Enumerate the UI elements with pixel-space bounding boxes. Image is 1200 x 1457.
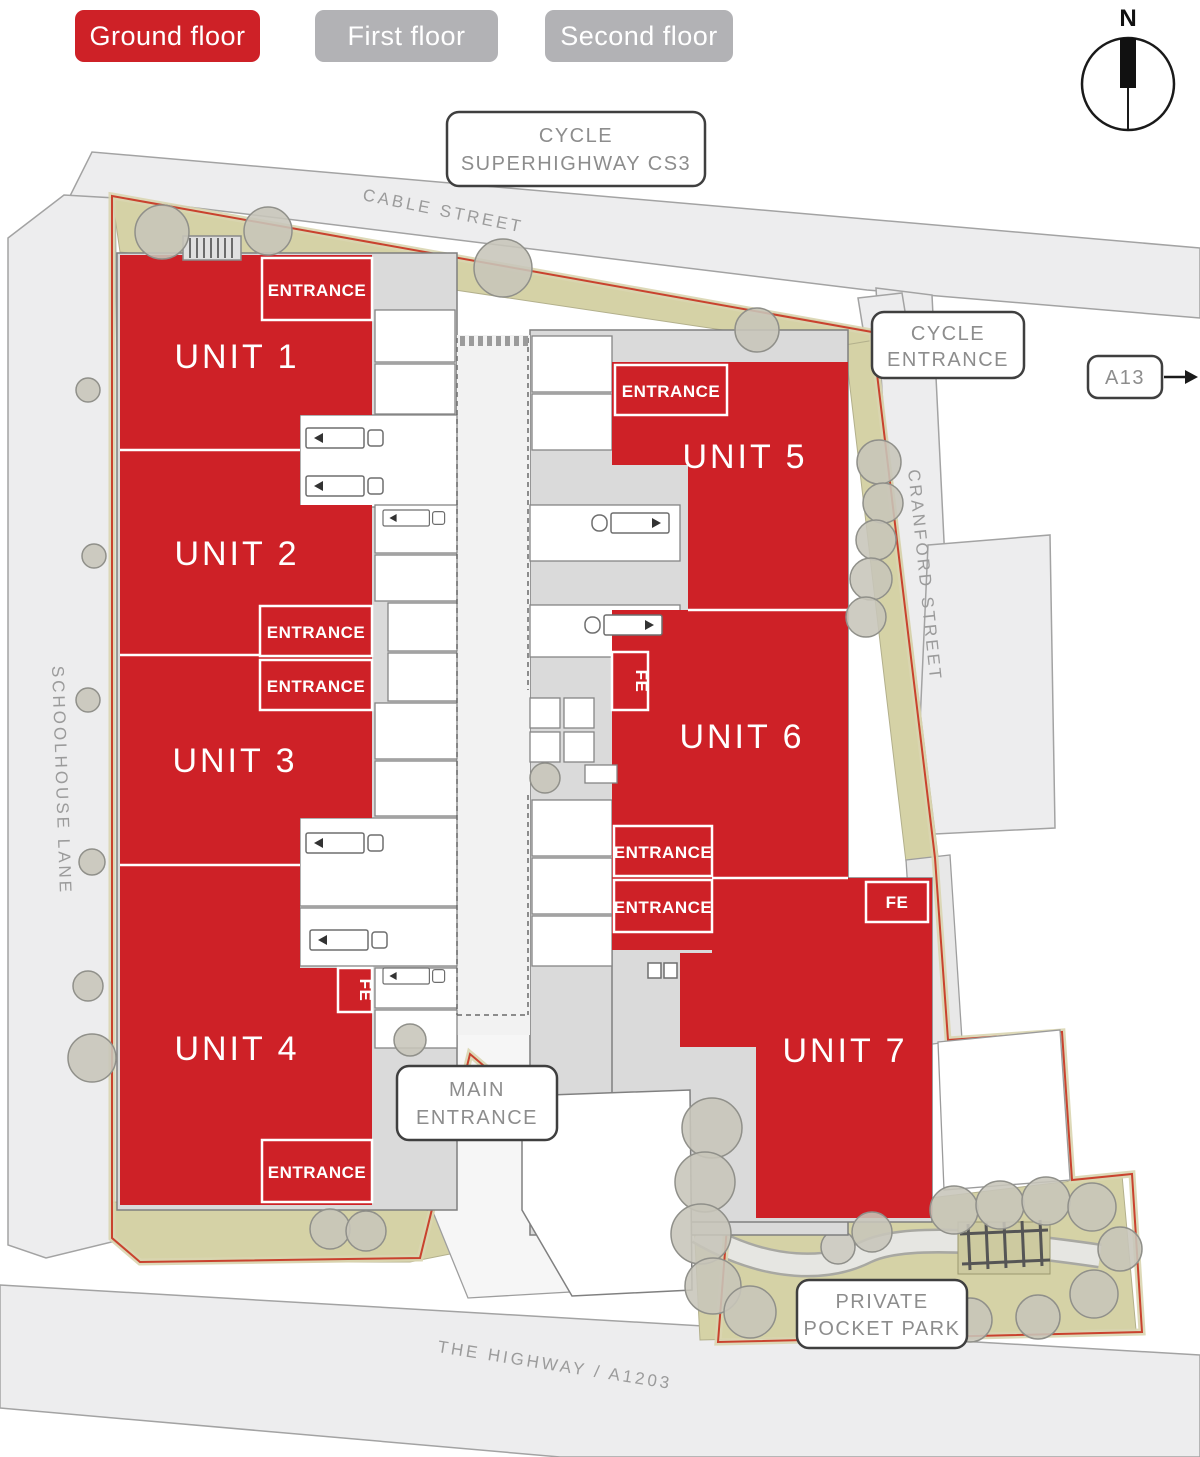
truck-icon bbox=[592, 513, 669, 533]
truck-icon bbox=[585, 615, 662, 635]
truck-icon bbox=[306, 833, 383, 853]
unit-4-fe-label: FE bbox=[356, 979, 375, 1002]
unit-6-entrance-label: ENTRANCE bbox=[614, 843, 712, 862]
cycle-superhighway-line2: SUPERHIGHWAY CS3 bbox=[461, 153, 691, 175]
truck-icon bbox=[383, 968, 445, 984]
floor-selector: Ground floor First floor Second floor bbox=[0, 0, 1200, 70]
unit-5-entrance-label: ENTRANCE bbox=[622, 382, 720, 401]
unit-7-label: UNIT 7 bbox=[782, 1032, 907, 1070]
truck-icon bbox=[306, 428, 383, 448]
cycle-superhighway-line1: CYCLE bbox=[539, 125, 613, 147]
bike-rack-icon bbox=[183, 236, 241, 260]
ground-floor-plan: UNIT 1 UNIT 2 UNIT 3 UNIT 4 UNIT 5 UNIT … bbox=[0, 0, 1200, 1457]
plant-box bbox=[648, 963, 661, 978]
tab-first-floor[interactable]: First floor bbox=[315, 10, 498, 62]
unit-1-entrance-label: ENTRANCE bbox=[268, 281, 366, 300]
unit-3-entrance-label: ENTRANCE bbox=[267, 677, 365, 696]
unit-4-entrance-label: ENTRANCE bbox=[268, 1163, 366, 1182]
unit-5-label: UNIT 5 bbox=[682, 438, 807, 476]
a13-label: A13 bbox=[1105, 367, 1145, 389]
unit-1-label: UNIT 1 bbox=[174, 338, 299, 376]
truck-icon bbox=[310, 930, 387, 950]
central-yard bbox=[457, 335, 530, 1035]
plant-box bbox=[664, 963, 677, 978]
tab-second-floor[interactable]: Second floor bbox=[545, 10, 733, 62]
truck-icon bbox=[306, 476, 383, 496]
unit-6-fe-label: FE bbox=[632, 670, 651, 693]
truck-icon bbox=[383, 510, 445, 526]
unit-4-label: UNIT 4 bbox=[174, 1030, 299, 1068]
unit-7-fe-label: FE bbox=[886, 893, 909, 912]
site-plan-page: UNIT 1 UNIT 2 UNIT 3 UNIT 4 UNIT 5 UNIT … bbox=[0, 0, 1200, 1457]
main-entrance-line1: MAIN bbox=[449, 1079, 505, 1101]
pocket-park-line1: PRIVATE bbox=[835, 1291, 928, 1313]
unit-6-label: UNIT 6 bbox=[679, 718, 804, 756]
tree-icon bbox=[530, 763, 560, 793]
cranford-side-street bbox=[915, 535, 1055, 835]
unit-6b-entrance-label: ENTRANCE bbox=[614, 898, 712, 917]
unit-2-label: UNIT 2 bbox=[174, 535, 299, 573]
a13-arrow-icon bbox=[1164, 370, 1198, 384]
pocket-park-line2: POCKET PARK bbox=[804, 1318, 961, 1340]
cycle-entrance-line1: CYCLE bbox=[911, 323, 985, 345]
cycle-entrance-line2: ENTRANCE bbox=[887, 349, 1009, 371]
adjacent-parcel bbox=[938, 1030, 1070, 1190]
unit-3-label: UNIT 3 bbox=[172, 742, 297, 780]
tab-ground-floor[interactable]: Ground floor bbox=[75, 10, 260, 62]
main-entrance-line2: ENTRANCE bbox=[416, 1107, 538, 1129]
unit-2-entrance-label: ENTRANCE bbox=[267, 623, 365, 642]
